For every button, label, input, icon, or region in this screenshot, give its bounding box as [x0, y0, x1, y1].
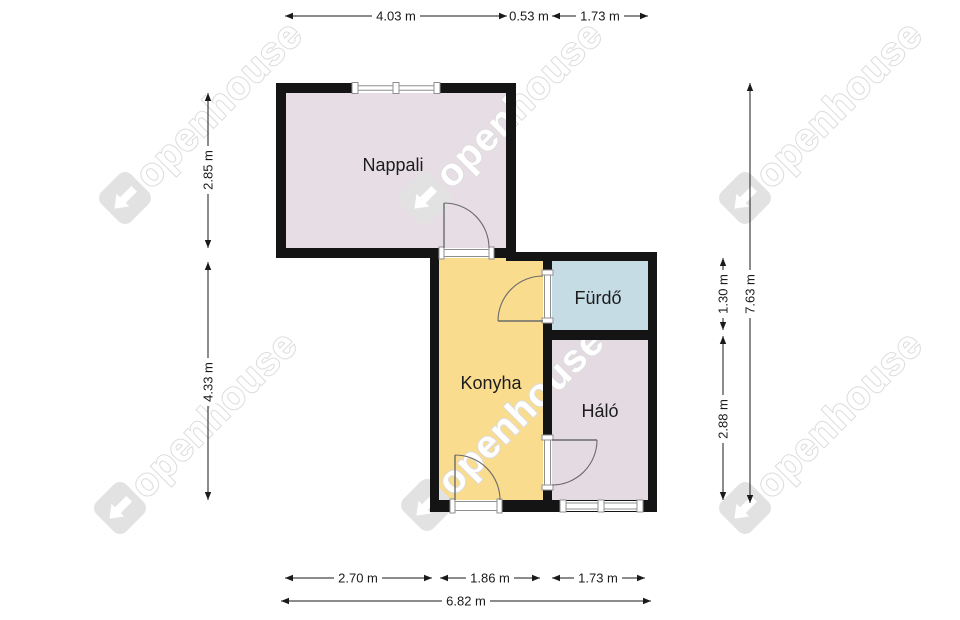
dimension-label: 1.73 m — [580, 9, 620, 24]
room-label-kitchen: Konyha — [460, 373, 522, 393]
doorway-living-kitchen — [439, 247, 494, 259]
wall — [506, 83, 516, 261]
doorway-kitchen-bedroom — [542, 435, 553, 490]
wall — [430, 248, 439, 512]
dimension-label: 1.30 m — [716, 274, 731, 314]
floorplan-drawing: openhouse openhouse openhouse openhouse … — [0, 0, 960, 620]
dimension-label: 1.86 m — [470, 571, 510, 586]
dimension-label: 0.53 m — [509, 9, 549, 24]
dimension-top-2: 0.53 m — [509, 9, 549, 24]
wall — [648, 252, 657, 512]
room-label-bathroom: Fürdő — [574, 288, 621, 308]
floorplan: openhouse openhouse openhouse openhouse … — [0, 0, 960, 620]
room-label-living: Nappali — [362, 155, 423, 175]
dimension-label: 2.88 m — [716, 399, 731, 439]
window-bedroom — [560, 500, 643, 512]
dimension-label: 4.33 m — [201, 362, 216, 402]
window-living — [352, 83, 440, 94]
dimension-label: 6.82 m — [446, 594, 486, 609]
dimension-label: 4.03 m — [376, 9, 416, 24]
wall — [543, 330, 657, 340]
doorway-kitchen-bathroom — [542, 270, 553, 323]
wall — [276, 83, 286, 258]
wall — [506, 252, 657, 261]
dimension-label: 2.70 m — [338, 571, 378, 586]
dimension-label: 1.73 m — [578, 571, 618, 586]
dimension-label: 2.85 m — [201, 150, 216, 190]
doorway-kitchen-entrance — [450, 499, 502, 513]
room-label-bedroom: Háló — [581, 401, 618, 421]
dimension-label: 7.63 m — [743, 274, 758, 314]
